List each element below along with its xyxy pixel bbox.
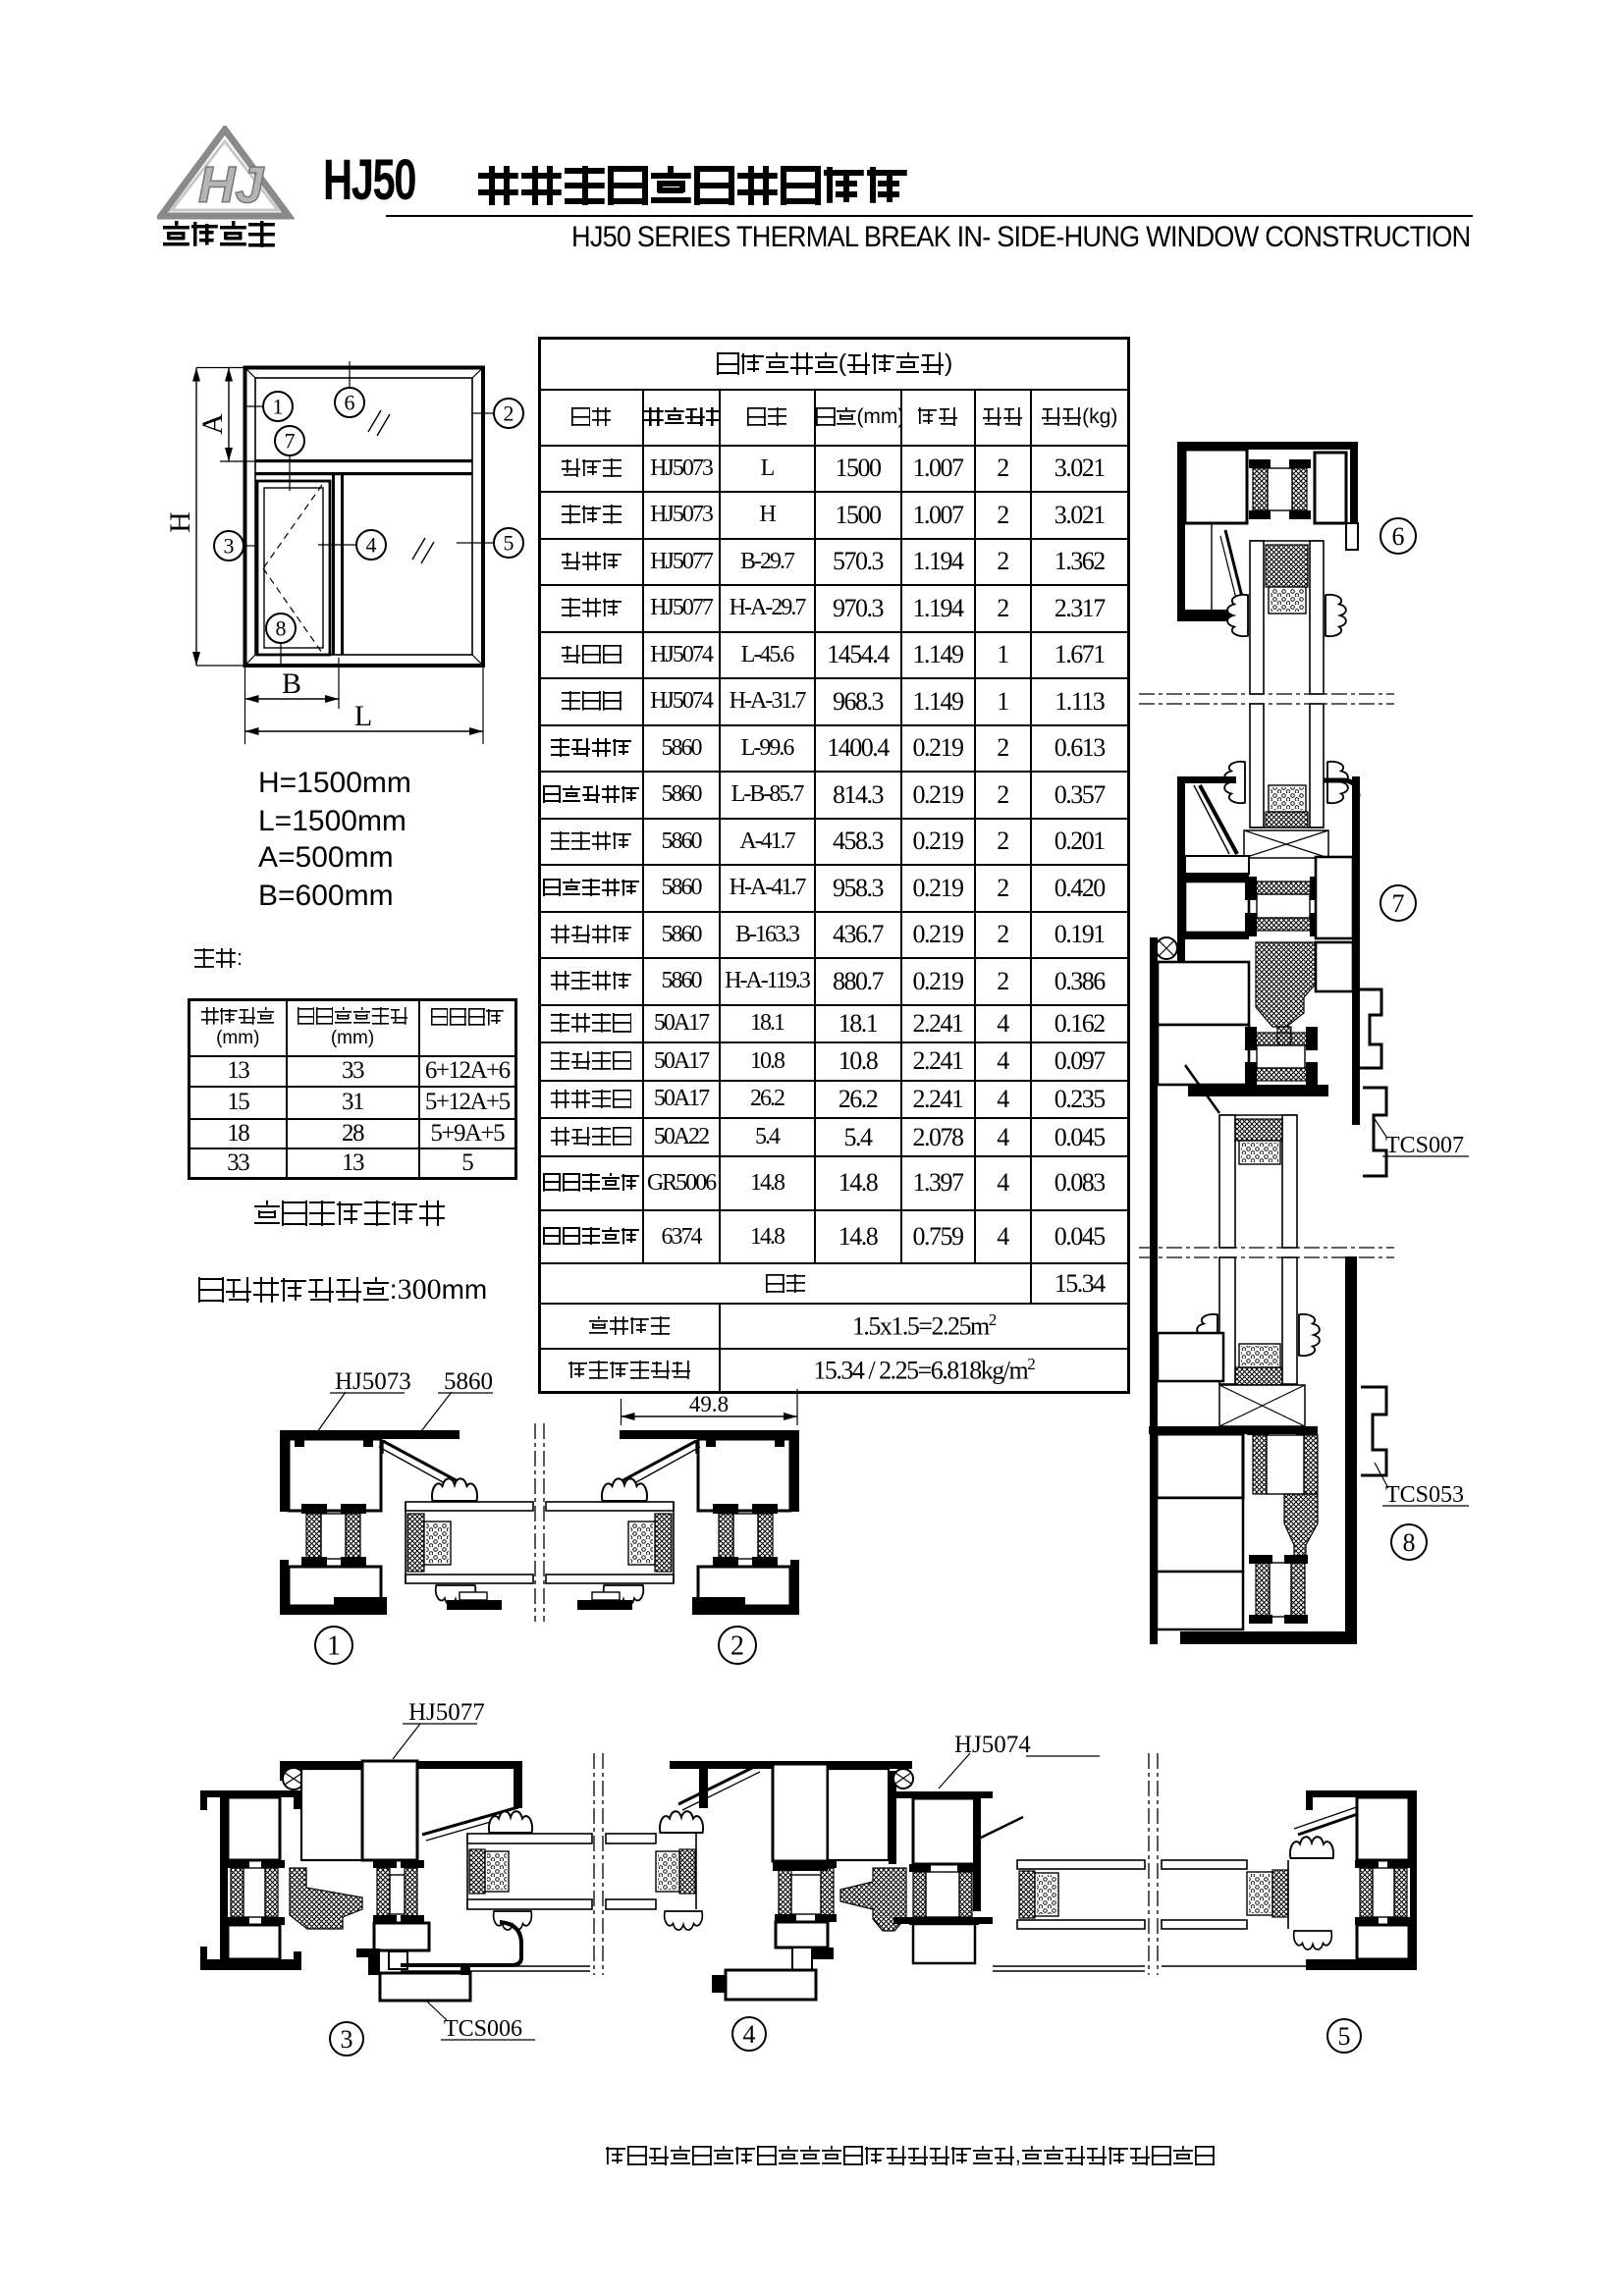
svg-text:7: 7: [285, 429, 296, 454]
svg-text:2: 2: [730, 1631, 744, 1662]
svg-text:8: 8: [1403, 1528, 1416, 1557]
svg-text:1: 1: [327, 1631, 341, 1662]
svg-text:4: 4: [743, 2020, 756, 2049]
svg-text:7: 7: [1392, 889, 1405, 918]
svg-text:5: 5: [504, 531, 514, 556]
svg-text:HJ5077: HJ5077: [408, 1699, 485, 1726]
svg-text:TCS053: TCS053: [1385, 1482, 1464, 1508]
svg-text:8: 8: [276, 616, 287, 641]
svg-text:TCS007: TCS007: [1385, 1133, 1464, 1158]
svg-text:A: A: [196, 413, 229, 435]
svg-text:TCS006: TCS006: [444, 2016, 522, 2042]
svg-text:HJ5074: HJ5074: [954, 1732, 1031, 1758]
svg-text:6: 6: [1392, 522, 1405, 551]
svg-text:HJ5073: HJ5073: [335, 1368, 411, 1395]
svg-text:2: 2: [504, 401, 514, 426]
svg-text:6: 6: [345, 391, 355, 415]
svg-text:5860: 5860: [444, 1368, 493, 1395]
svg-text:5: 5: [1338, 2022, 1351, 2051]
svg-text:H: H: [164, 511, 196, 533]
svg-text:49.8: 49.8: [689, 1392, 729, 1416]
svg-text:3: 3: [224, 534, 235, 559]
svg-text:L: L: [354, 700, 372, 732]
svg-text:4: 4: [366, 533, 377, 558]
svg-text:1: 1: [273, 395, 284, 419]
svg-text:3: 3: [341, 2025, 353, 2054]
svg-text:B: B: [282, 667, 301, 700]
